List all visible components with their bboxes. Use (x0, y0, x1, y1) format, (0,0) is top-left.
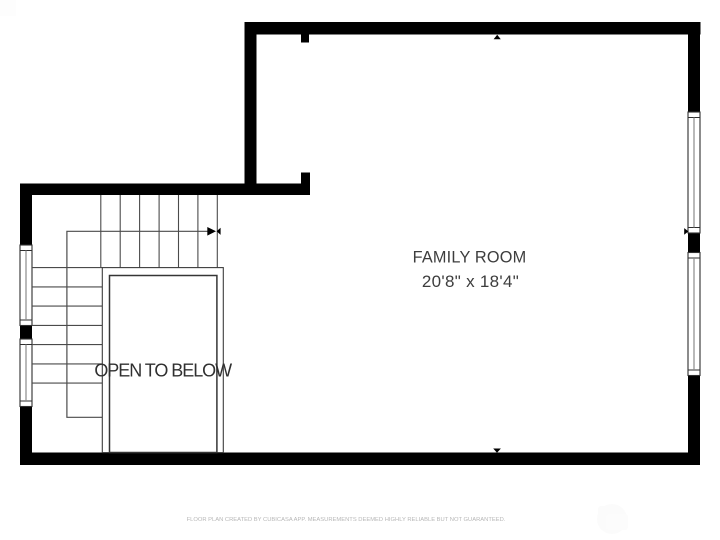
svg-text:FLOOR PLAN CREATED BY CUBICASA: FLOOR PLAN CREATED BY CUBICASA APP. MEAS… (187, 517, 506, 523)
svg-text:OPEN TO BELOW: OPEN TO BELOW (94, 361, 232, 381)
svg-text:20'8" x 18'4": 20'8" x 18'4" (422, 272, 519, 291)
svg-text:FAMILY ROOM: FAMILY ROOM (413, 248, 527, 266)
